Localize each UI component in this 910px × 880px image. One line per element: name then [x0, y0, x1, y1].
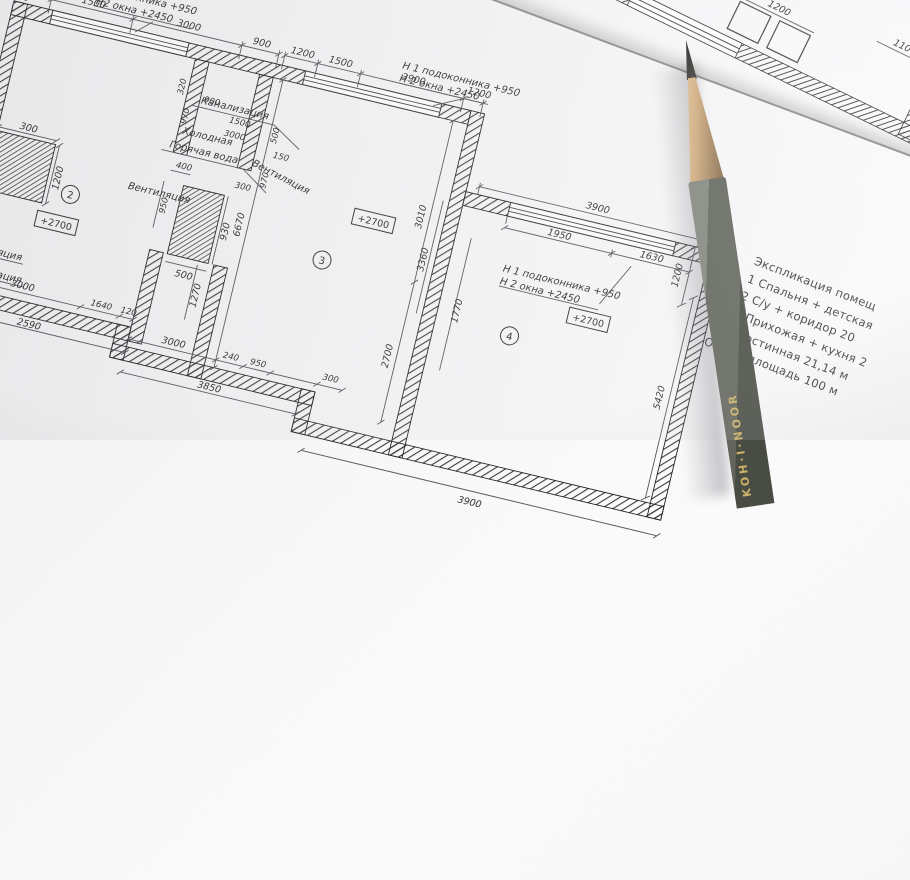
- dimension-label: 1640: [90, 298, 113, 313]
- dimension-label: 1200: [50, 165, 66, 191]
- dimension-label: 3010: [413, 204, 429, 230]
- room-number: 4: [505, 331, 514, 343]
- dimension-label: 1770: [449, 298, 465, 324]
- dimension-label: 300: [19, 121, 39, 136]
- photo-of-floor-plan: { "pencil": { "brand": "KOH·I·NOOR" }, "…: [0, 0, 910, 440]
- dimension-label: 150: [272, 151, 290, 165]
- room-mark: 3 +2700: [311, 201, 396, 283]
- dimension-label: 2700: [380, 343, 396, 369]
- dimension-label: 5420: [652, 385, 668, 411]
- room-number: 2: [66, 190, 75, 202]
- dimension-label: 930: [218, 222, 233, 242]
- dimension-label: 300: [321, 372, 339, 386]
- dimension-label: 3000: [160, 335, 186, 351]
- room-number: 3: [317, 255, 326, 267]
- dimension-label: 300: [234, 181, 252, 195]
- dimension-label: 3900: [456, 494, 482, 510]
- room-mark: 4 +2700: [499, 293, 611, 367]
- dimension-label: 3000: [176, 18, 202, 34]
- dimension-label: 1200: [290, 45, 316, 61]
- dimension-label: 1270: [188, 282, 204, 308]
- dimension-label: 6670: [231, 212, 247, 238]
- dimension-label: 3900: [585, 200, 611, 216]
- dimension-label: 1500: [328, 54, 354, 70]
- dimension-label: 500: [173, 268, 193, 283]
- dimension-label: 1100: [891, 37, 910, 57]
